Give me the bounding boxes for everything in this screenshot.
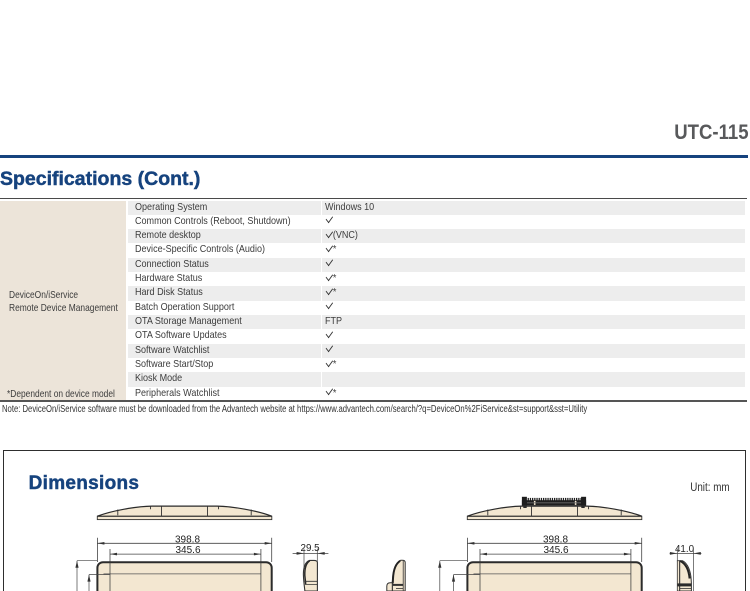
svg-text:345.6: 345.6 [543,545,568,556]
svg-text:345.6: 345.6 [175,545,200,556]
